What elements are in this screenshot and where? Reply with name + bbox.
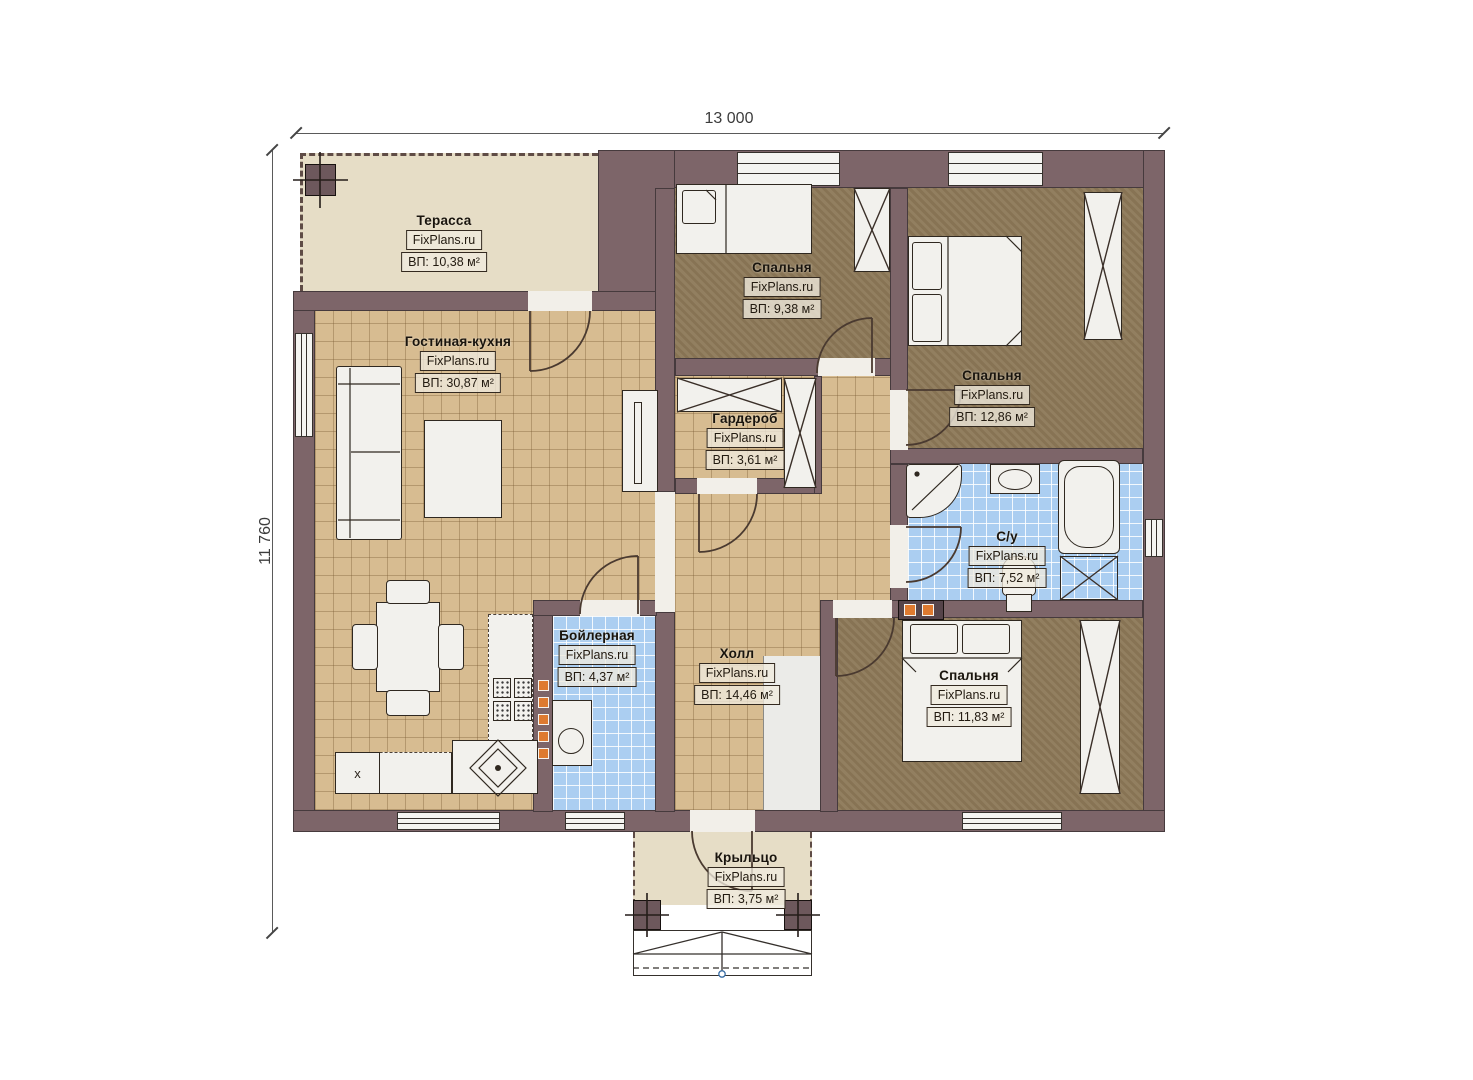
dining-table bbox=[376, 602, 440, 692]
wardrobe-cabinet bbox=[784, 378, 816, 488]
watermark: FixPlans.ru bbox=[969, 546, 1046, 566]
room-area: ВП: 3,61 м² bbox=[706, 450, 785, 470]
room-name: Крыльцо bbox=[715, 850, 778, 865]
bed-pillow bbox=[912, 242, 942, 290]
boiler-dial bbox=[558, 728, 584, 754]
bed-pillow bbox=[682, 190, 716, 224]
room-name: Бойлерная bbox=[559, 628, 635, 643]
window-bedroom2 bbox=[948, 152, 1043, 186]
appliance-knob bbox=[538, 731, 549, 742]
tv-screen bbox=[634, 402, 642, 484]
room-label-porch: Крыльцо FixPlans.ru ВП: 3,75 м² bbox=[707, 850, 786, 909]
wall-living-hall-upper bbox=[655, 188, 675, 492]
wardrobe-cabinet bbox=[1084, 192, 1122, 340]
chair-bottom bbox=[386, 690, 430, 716]
window-kitchen-south bbox=[397, 812, 500, 830]
doorway-bathroom bbox=[890, 525, 908, 588]
opening-living-hall bbox=[655, 492, 675, 612]
dimension-width-label: 13 000 bbox=[705, 110, 754, 128]
stove-burner bbox=[514, 701, 532, 721]
room-label-terrace: Терасса FixPlans.ru ВП: 10,38 м² bbox=[401, 213, 487, 272]
doorway-bedroom1 bbox=[818, 358, 875, 376]
doorway-terrace bbox=[528, 291, 592, 311]
appliance-knob bbox=[538, 697, 549, 708]
room-name: Гардероб bbox=[712, 411, 777, 426]
room-label-boiler: Бойлерная FixPlans.ru ВП: 4,37 м² bbox=[558, 628, 637, 687]
room-area: ВП: 9,38 м² bbox=[743, 299, 822, 319]
room-name: Спальня bbox=[962, 368, 1022, 383]
window-bedroom1 bbox=[737, 152, 840, 186]
room-area: ВП: 11,83 м² bbox=[927, 707, 1012, 727]
floor-plan: x bbox=[0, 0, 1473, 1080]
room-name: Холл bbox=[720, 646, 755, 661]
porch-steps bbox=[633, 930, 812, 976]
window-living-west bbox=[295, 333, 313, 437]
room-label-bedroom1: Спальня FixPlans.ru ВП: 9,38 м² bbox=[743, 260, 822, 319]
wall-living-hall-lower bbox=[655, 612, 675, 812]
washing-machine bbox=[1060, 556, 1118, 600]
sink-basin bbox=[998, 469, 1032, 490]
doorway-entrance bbox=[690, 810, 755, 832]
doorway-wardrobe bbox=[697, 478, 757, 494]
room-name: Спальня bbox=[752, 260, 812, 275]
porch-post-right bbox=[784, 900, 812, 930]
room-name: Гостиная-кухня bbox=[405, 334, 511, 349]
room-label-wardrobe: Гардероб FixPlans.ru ВП: 3,61 м² bbox=[706, 411, 785, 470]
watermark: FixPlans.ru bbox=[699, 663, 776, 683]
bed-pillow bbox=[912, 294, 942, 342]
dimension-line-top bbox=[295, 133, 1163, 134]
fridge-slot-label: x bbox=[354, 766, 361, 781]
room-area: ВП: 3,75 м² bbox=[707, 889, 786, 909]
watermark: FixPlans.ru bbox=[559, 645, 636, 665]
room-label-bedroom2: Спальня FixPlans.ru ВП: 12,86 м² bbox=[949, 368, 1035, 427]
room-name: Спальня bbox=[939, 668, 999, 683]
doorway-bedroom2 bbox=[890, 390, 908, 450]
toilet-tank bbox=[1006, 594, 1032, 612]
chair-left bbox=[352, 624, 378, 670]
appliance-knob bbox=[538, 680, 549, 691]
wardrobe-cabinet bbox=[677, 378, 782, 412]
window-bathroom-east bbox=[1145, 519, 1163, 557]
room-area: ВП: 10,38 м² bbox=[401, 252, 487, 272]
room-label-hall: Холл FixPlans.ru ВП: 14,46 м² bbox=[694, 646, 780, 705]
wall-north bbox=[598, 150, 1165, 188]
watermark: FixPlans.ru bbox=[931, 685, 1008, 705]
room-area: ВП: 4,37 м² bbox=[558, 667, 637, 687]
room-name: Терасса bbox=[417, 213, 472, 228]
doorway-boiler bbox=[580, 600, 640, 616]
bed-pillow bbox=[910, 624, 958, 654]
room-label-living: Гостиная-кухня FixPlans.ru ВП: 30,87 м² bbox=[405, 334, 511, 393]
room-area: ВП: 7,52 м² bbox=[968, 568, 1047, 588]
watermark: FixPlans.ru bbox=[708, 867, 785, 887]
bathtub-inner bbox=[1064, 466, 1114, 548]
doorway-bedroom3 bbox=[833, 600, 892, 618]
fridge-slot: x bbox=[335, 752, 380, 794]
bed-pillow bbox=[962, 624, 1010, 654]
window-boiler-south bbox=[565, 812, 625, 830]
towel-rail-knob bbox=[922, 604, 934, 616]
room-area: ВП: 12,86 м² bbox=[949, 407, 1035, 427]
wall-east bbox=[1143, 150, 1165, 832]
watermark: FixPlans.ru bbox=[744, 277, 821, 297]
stove-burner bbox=[493, 701, 511, 721]
towel-rail-knob bbox=[904, 604, 916, 616]
watermark: FixPlans.ru bbox=[420, 351, 497, 371]
watermark: FixPlans.ru bbox=[954, 385, 1031, 405]
kitchen-corner-sink-unit bbox=[452, 740, 538, 794]
stove-burner bbox=[514, 678, 532, 698]
room-area: ВП: 30,87 м² bbox=[415, 373, 501, 393]
room-name: С/у bbox=[996, 529, 1018, 544]
coffee-table bbox=[424, 420, 502, 518]
wall-bedroom3-west bbox=[820, 600, 838, 812]
appliance-knob bbox=[538, 748, 549, 759]
dimension-height-label: 11 760 bbox=[257, 517, 275, 565]
porch-post-left bbox=[633, 900, 661, 930]
chair-top bbox=[386, 580, 430, 604]
room-label-bedroom3: Спальня FixPlans.ru ВП: 11,83 м² bbox=[927, 668, 1012, 727]
wall-living-north bbox=[293, 291, 675, 311]
wardrobe-cabinet bbox=[1080, 620, 1120, 794]
room-label-bathroom: С/у FixPlans.ru ВП: 7,52 м² bbox=[968, 529, 1047, 588]
terrace-column bbox=[305, 164, 336, 196]
wardrobe-cabinet bbox=[854, 188, 890, 272]
appliance-knob bbox=[538, 714, 549, 725]
sofa bbox=[336, 366, 402, 540]
stove-burner bbox=[493, 678, 511, 698]
chair-right bbox=[438, 624, 464, 670]
window-bedroom3-south bbox=[962, 812, 1062, 830]
watermark: FixPlans.ru bbox=[406, 230, 483, 250]
watermark: FixPlans.ru bbox=[707, 428, 784, 448]
room-area: ВП: 14,46 м² bbox=[694, 685, 780, 705]
